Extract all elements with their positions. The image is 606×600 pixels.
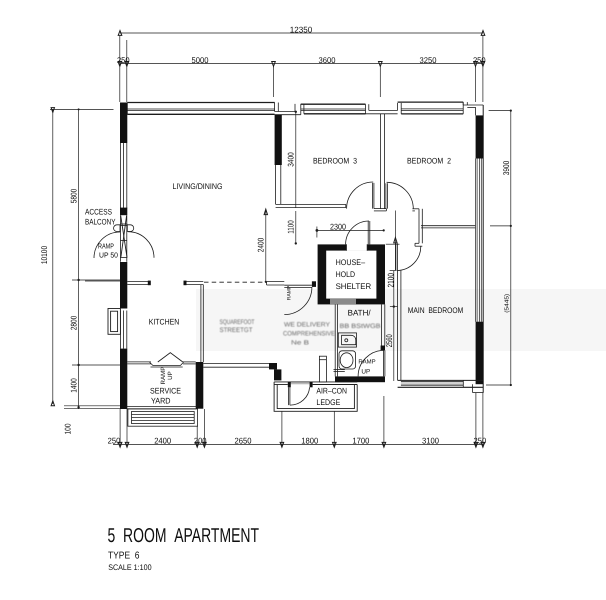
svg-text:STREETGT: STREETGT (220, 327, 253, 334)
svg-text:BB BStWGB: BB BStWGB (340, 323, 381, 330)
svg-text:5800: 5800 (68, 188, 78, 203)
svg-text:1400: 1400 (68, 378, 78, 393)
svg-text:1800: 1800 (301, 436, 318, 446)
svg-text:LIVING/DINING: LIVING/DINING (173, 182, 223, 191)
svg-text:KITCHEN: KITCHEN (149, 317, 180, 326)
svg-text:RAMP: RAMP (160, 367, 167, 385)
svg-text:BATH/: BATH/ (348, 309, 372, 318)
svg-text:Ne B: Ne B (291, 340, 309, 347)
svg-text:AIR–CON: AIR–CON (316, 386, 347, 395)
svg-text:250: 250 (473, 55, 486, 65)
svg-text:200: 200 (194, 436, 207, 446)
svg-text:250: 250 (108, 436, 121, 446)
svg-text:RAMP: RAMP (98, 241, 114, 250)
svg-text:2400: 2400 (154, 436, 171, 446)
svg-text:YARD: YARD (151, 396, 171, 405)
svg-text:2800: 2800 (68, 315, 78, 330)
svg-text:1700: 1700 (352, 436, 369, 446)
svg-text:3100: 3100 (422, 436, 439, 446)
svg-text:HOUSE–: HOUSE– (336, 258, 366, 267)
svg-text:TYPE 6: TYPE 6 (108, 550, 140, 561)
svg-text:10100: 10100 (39, 246, 49, 264)
svg-text:HOLD: HOLD (336, 270, 356, 279)
svg-text:3250: 3250 (420, 55, 437, 65)
svg-text:RAMP: RAMP (287, 285, 293, 300)
svg-text:SERVICE: SERVICE (150, 387, 182, 396)
svg-text:250: 250 (474, 436, 487, 446)
svg-text:WE DELIVERY: WE DELIVERY (284, 322, 331, 329)
svg-text:UP 50: UP 50 (99, 250, 118, 259)
svg-text:SCALE 1:100: SCALE 1:100 (108, 563, 152, 572)
svg-text:12350: 12350 (290, 24, 313, 34)
svg-text:UP: UP (361, 369, 370, 376)
svg-text:SQUAREFOOT: SQUAREFOOT (220, 319, 255, 326)
svg-text:2650: 2650 (235, 436, 252, 446)
svg-text:BALCONY: BALCONY (85, 218, 116, 227)
svg-text:BEDROOM 2: BEDROOM 2 (407, 157, 451, 166)
svg-text:UP: UP (167, 371, 174, 380)
svg-text:5 ROOM APARTMENT: 5 ROOM APARTMENT (108, 525, 260, 547)
svg-text:COMPREHENSIVE: COMPREHENSIVE (283, 331, 335, 338)
svg-text:MAIN BEDROOM: MAIN BEDROOM (408, 306, 464, 315)
svg-text:ACCESS: ACCESS (85, 207, 112, 216)
svg-text:3600: 3600 (319, 55, 336, 65)
svg-text:250: 250 (117, 55, 130, 65)
svg-text:BEDROOM 3: BEDROOM 3 (313, 157, 357, 166)
svg-text:2400: 2400 (255, 237, 265, 252)
svg-text:2300: 2300 (330, 222, 346, 232)
svg-text:2560: 2560 (384, 334, 394, 347)
svg-text:100: 100 (63, 423, 73, 434)
svg-text:SHELTER: SHELTER (336, 282, 372, 291)
svg-text:(5445): (5445) (504, 294, 511, 313)
svg-text:RAMP: RAMP (358, 359, 375, 366)
svg-text:5000: 5000 (192, 55, 209, 65)
svg-text:1100: 1100 (286, 220, 296, 234)
svg-text:3400: 3400 (286, 152, 296, 167)
svg-text:3900: 3900 (501, 160, 511, 175)
svg-text:LEDGE: LEDGE (316, 398, 341, 407)
